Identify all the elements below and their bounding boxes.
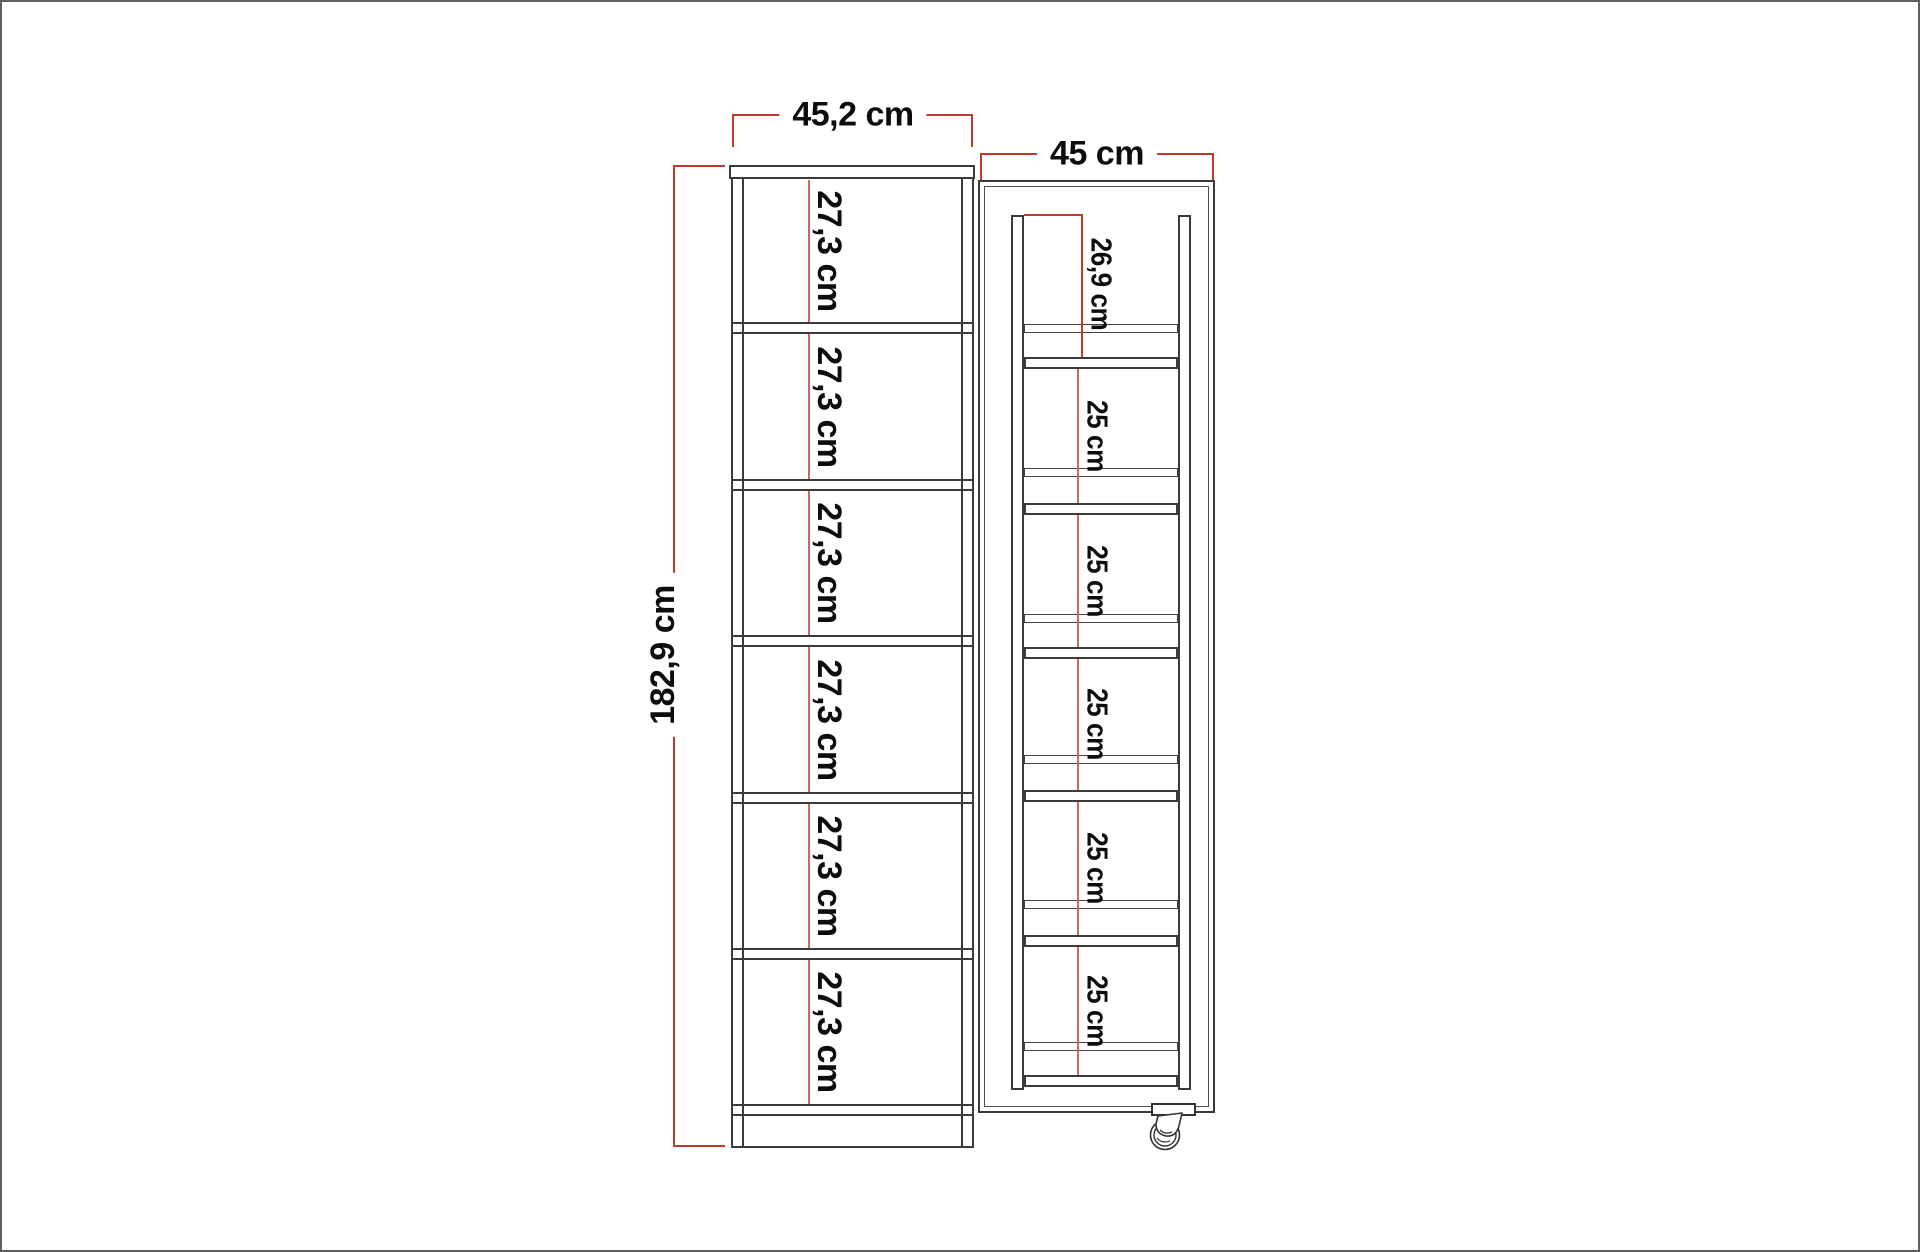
section-measure-line bbox=[1077, 947, 1079, 1075]
front-cabinet-left-side-panel-inner bbox=[742, 178, 744, 1148]
compartment-height-label: 27,3 cm bbox=[812, 502, 846, 623]
section-height-label: 26,9 cm bbox=[1086, 238, 1115, 331]
side-shelf-slat-lower bbox=[1024, 503, 1178, 515]
front-cabinet-left-side-panel bbox=[731, 178, 733, 1148]
front-width-dimension-label: 45,2 cm bbox=[779, 96, 926, 133]
front-height-dimension-tick-bottom bbox=[673, 1145, 725, 1147]
compartment-height-label: 27,3 cm bbox=[812, 971, 846, 1092]
section-height-label: 25 cm bbox=[1082, 400, 1111, 472]
front-width-dimension-tick-left bbox=[732, 114, 734, 147]
front-cabinet-bottom-panel bbox=[731, 1104, 974, 1116]
compartment-height-label: 27,3 cm bbox=[812, 815, 846, 936]
front-width-dimension-tick-right bbox=[971, 114, 973, 147]
section-measure-line bbox=[1077, 659, 1079, 790]
front-cabinet-right-side-panel bbox=[972, 178, 974, 1148]
section-height-label: 25 cm bbox=[1082, 688, 1111, 760]
front-cabinet-shelf-board bbox=[731, 635, 974, 647]
side-width-dimension-label: 45 cm bbox=[1037, 135, 1157, 172]
section-height-label: 25 cm bbox=[1082, 545, 1111, 617]
side-cabinet-back-rail bbox=[1178, 215, 1191, 1090]
caster-wheel-icon bbox=[1130, 1090, 1210, 1170]
side-shelf-slat-lower bbox=[1024, 790, 1178, 802]
front-cabinet-shelf-board bbox=[731, 322, 974, 334]
compartment-height-label: 27,3 cm bbox=[812, 346, 846, 467]
front-height-dimension-tick-top bbox=[673, 165, 725, 167]
side-shelf-slat-lower bbox=[1024, 647, 1178, 659]
section-height-label: 25 cm bbox=[1082, 832, 1111, 904]
side-width-dimension-tick-right bbox=[1212, 153, 1214, 180]
front-cabinet-bottom-edge bbox=[731, 1146, 974, 1148]
section-height-label: 25 cm bbox=[1082, 975, 1111, 1047]
side-cabinet-front-rail bbox=[1011, 215, 1024, 1090]
side-width-dimension-tick-left bbox=[980, 153, 982, 180]
front-cabinet-shelf-board bbox=[731, 479, 974, 491]
front-cabinet-top-panel bbox=[729, 165, 975, 179]
section-measure-line bbox=[1077, 369, 1079, 503]
front-cabinet-shelf-board bbox=[731, 948, 974, 960]
side-shelf-slat-lower bbox=[1024, 935, 1178, 947]
front-cabinet-right-side-panel-inner bbox=[961, 178, 963, 1148]
section-measure-line-horizontal bbox=[1024, 214, 1083, 216]
side-shelf-slat-lower bbox=[1024, 357, 1178, 369]
section-measure-line bbox=[1077, 515, 1079, 647]
front-height-dimension-label: 182,9 cm bbox=[646, 573, 680, 737]
section-measure-line bbox=[1077, 802, 1079, 935]
compartment-height-label: 27,3 cm bbox=[812, 190, 846, 311]
technical-drawing-canvas: 45,2 cm 27,3 cm 27,3 cm 27,3 cm 27,3 cm … bbox=[0, 0, 1920, 1252]
front-cabinet-shelf-board bbox=[731, 792, 974, 804]
side-shelf-slat-lower bbox=[1024, 1075, 1178, 1087]
section-measure-line bbox=[1081, 214, 1083, 357]
compartment-height-label: 27,3 cm bbox=[812, 659, 846, 780]
